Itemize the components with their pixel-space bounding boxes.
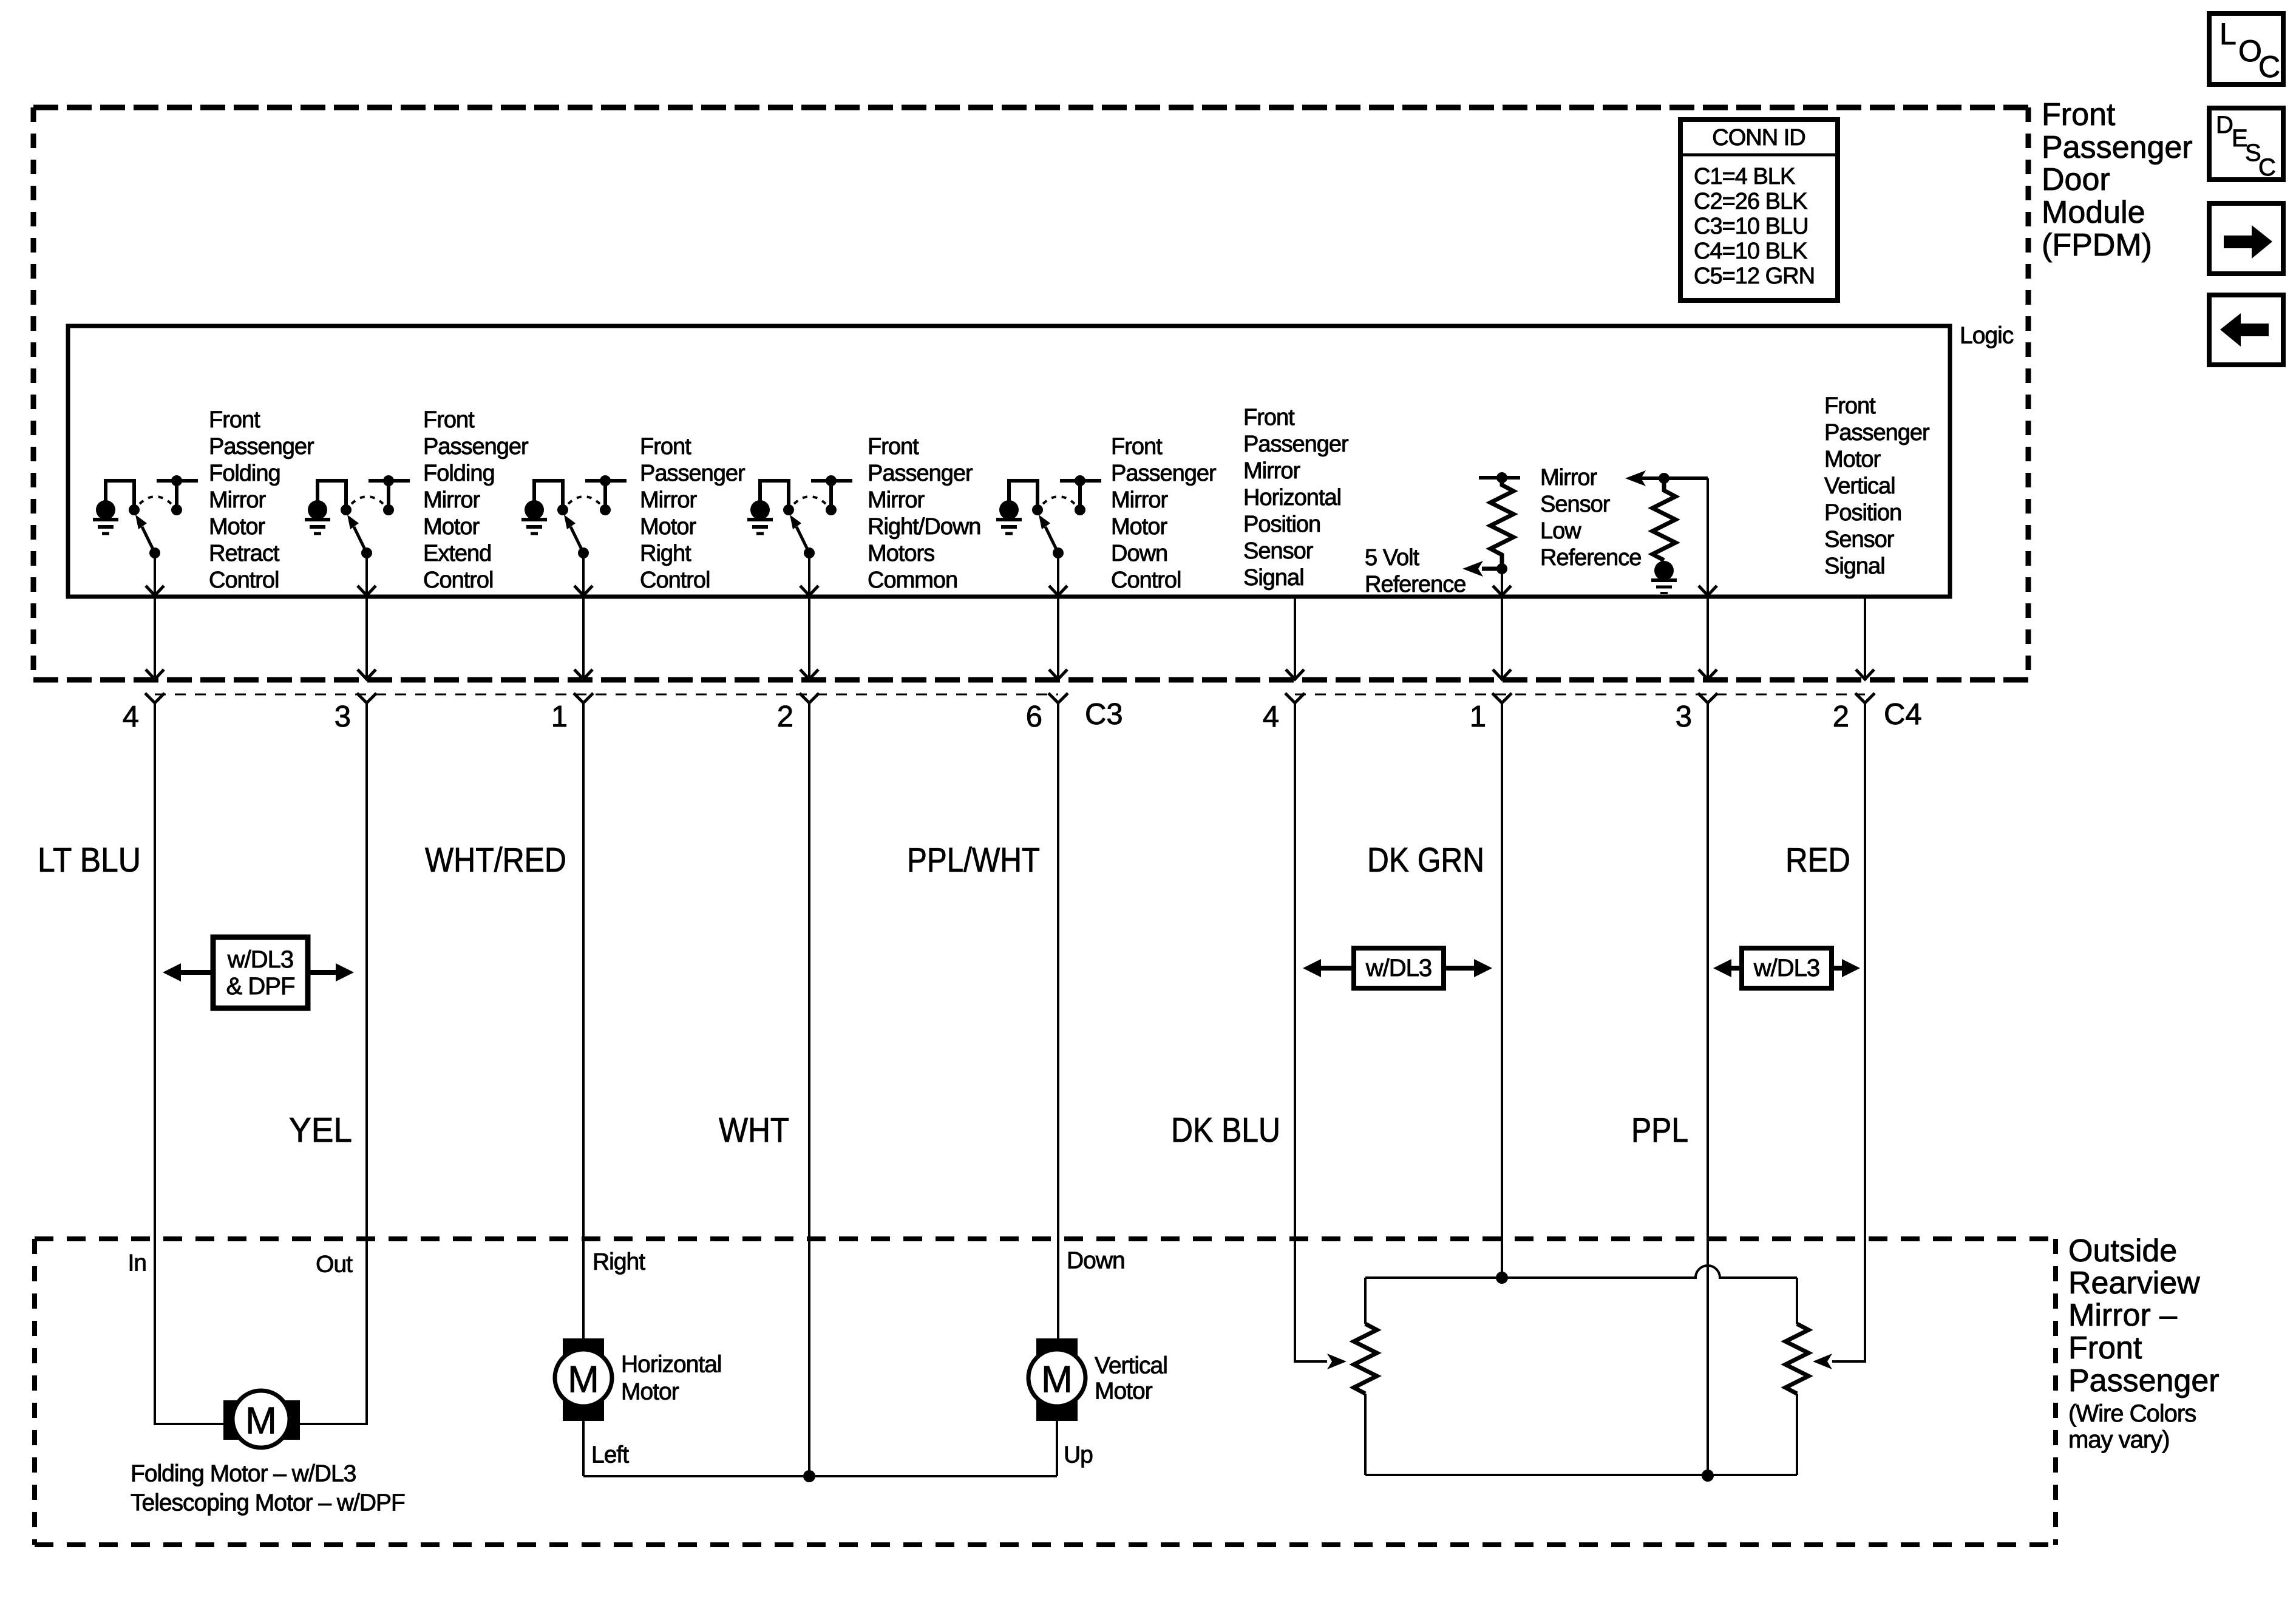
svg-text:Passenger: Passenger: [423, 434, 529, 459]
svg-text:D: D: [2216, 112, 2233, 138]
svg-text:Front: Front: [209, 407, 260, 433]
svg-text:Folding Motor – w/DL3: Folding Motor – w/DL3: [131, 1461, 356, 1487]
svg-text:1: 1: [1470, 700, 1486, 733]
svg-text:2: 2: [777, 700, 793, 733]
svg-text:& DPF: & DPF: [226, 973, 295, 1000]
svg-text:LT BLU: LT BLU: [38, 841, 141, 880]
svg-text:C: C: [2258, 50, 2280, 84]
svg-text:may vary): may vary): [2068, 1426, 2170, 1453]
svg-text:Motors: Motors: [868, 541, 934, 566]
svg-text:Control: Control: [423, 568, 494, 593]
svg-text:1: 1: [551, 700, 568, 733]
svg-text:Right/Down: Right/Down: [868, 514, 980, 540]
svg-text:C5=12 GRN: C5=12 GRN: [1694, 263, 1815, 289]
svg-text:Mirror: Mirror: [1111, 487, 1169, 513]
svg-text:Passenger: Passenger: [868, 461, 973, 486]
svg-text:L: L: [2220, 17, 2237, 51]
svg-text:6: 6: [1026, 700, 1042, 733]
svg-text:Control: Control: [209, 568, 279, 593]
svg-text:DK BLU: DK BLU: [1171, 1111, 1280, 1150]
svg-text:Telescoping Motor – w/DPF: Telescoping Motor – w/DPF: [131, 1490, 405, 1516]
svg-text:WHT/RED: WHT/RED: [425, 841, 566, 880]
svg-text:Front: Front: [640, 434, 691, 459]
svg-text:Motor: Motor: [640, 514, 696, 540]
svg-text:Module: Module: [2042, 195, 2145, 230]
svg-text:Folding: Folding: [423, 461, 495, 486]
svg-text:Vertical: Vertical: [1824, 473, 1895, 499]
svg-text:YEL: YEL: [289, 1111, 352, 1150]
svg-text:Motor: Motor: [423, 514, 480, 540]
svg-text:Rearview: Rearview: [2068, 1266, 2200, 1301]
svg-text:Horizontal: Horizontal: [1243, 485, 1341, 510]
svg-text:Sensor: Sensor: [1824, 527, 1895, 552]
svg-text:3: 3: [1676, 700, 1692, 733]
svg-text:Passenger: Passenger: [640, 461, 746, 486]
svg-text:Reference: Reference: [1365, 572, 1466, 597]
svg-text:Motor: Motor: [1111, 514, 1167, 540]
svg-text:Motor: Motor: [621, 1379, 679, 1405]
svg-text:M: M: [1041, 1359, 1073, 1401]
svg-text:w/DL3: w/DL3: [227, 946, 293, 973]
svg-text:Motor: Motor: [209, 514, 265, 540]
svg-text:4: 4: [123, 700, 139, 733]
svg-text:C2=26 BLK: C2=26 BLK: [1694, 189, 1807, 214]
svg-text:Motor: Motor: [1095, 1378, 1153, 1405]
svg-text:(FPDM): (FPDM): [2042, 228, 2152, 263]
svg-text:Retract: Retract: [209, 541, 280, 566]
svg-text:3: 3: [335, 700, 351, 733]
svg-text:Logic: Logic: [1960, 323, 2014, 349]
svg-text:Front: Front: [1824, 393, 1876, 419]
svg-text:Reference: Reference: [1540, 545, 1641, 571]
svg-text:w/DL3: w/DL3: [1753, 955, 1819, 981]
svg-text:Extend: Extend: [423, 541, 491, 566]
svg-text:M: M: [245, 1400, 277, 1442]
svg-text:Front: Front: [1111, 434, 1163, 459]
svg-text:Front: Front: [423, 407, 475, 433]
svg-text:Front: Front: [2068, 1331, 2142, 1366]
svg-text:Right: Right: [593, 1249, 645, 1275]
svg-text:C4=10 BLK: C4=10 BLK: [1694, 239, 1807, 264]
svg-text:Down: Down: [1111, 541, 1167, 566]
svg-text:Control: Control: [640, 568, 710, 593]
svg-text:4: 4: [1263, 700, 1279, 733]
svg-text:Outside: Outside: [2068, 1233, 2177, 1269]
svg-text:In: In: [127, 1250, 146, 1276]
svg-text:Passenger: Passenger: [1824, 420, 1930, 446]
svg-text:C3: C3: [1085, 698, 1123, 731]
svg-text:C3=10 BLU: C3=10 BLU: [1694, 214, 1809, 239]
svg-text:Door: Door: [2042, 162, 2110, 197]
svg-text:WHT: WHT: [719, 1111, 789, 1150]
svg-text:Folding: Folding: [209, 461, 280, 486]
svg-text:Passenger: Passenger: [2068, 1363, 2220, 1398]
svg-text:(Wire Colors: (Wire Colors: [2068, 1400, 2196, 1427]
svg-text:Down: Down: [1067, 1248, 1125, 1274]
svg-text:Position: Position: [1243, 512, 1320, 537]
svg-text:Passenger: Passenger: [1243, 432, 1349, 457]
svg-text:PPL/WHT: PPL/WHT: [907, 841, 1040, 880]
svg-text:Mirror: Mirror: [423, 487, 481, 513]
svg-text:RED: RED: [1785, 841, 1850, 880]
svg-text:DK GRN: DK GRN: [1367, 841, 1484, 880]
svg-text:Mirror: Mirror: [640, 487, 698, 513]
svg-text:Horizontal: Horizontal: [621, 1352, 722, 1378]
svg-text:Mirror: Mirror: [209, 487, 267, 513]
svg-text:C: C: [2258, 154, 2276, 181]
svg-text:Sensor: Sensor: [1243, 538, 1314, 564]
svg-text:Signal: Signal: [1824, 554, 1885, 579]
svg-text:Mirror –: Mirror –: [2068, 1298, 2177, 1333]
svg-text:Left: Left: [591, 1442, 629, 1468]
svg-text:Control: Control: [1111, 568, 1181, 593]
svg-text:C1=4 BLK: C1=4 BLK: [1694, 164, 1795, 189]
svg-text:M: M: [568, 1359, 599, 1401]
svg-text:Passenger: Passenger: [2042, 130, 2193, 165]
svg-text:PPL: PPL: [1631, 1111, 1688, 1150]
svg-text:5 Volt: 5 Volt: [1365, 545, 1420, 571]
svg-text:Position: Position: [1824, 500, 1901, 526]
svg-text:Front: Front: [868, 434, 919, 459]
svg-text:Mirror: Mirror: [868, 487, 925, 513]
svg-text:Mirror: Mirror: [1540, 465, 1598, 490]
svg-text:Up: Up: [1064, 1442, 1093, 1468]
svg-text:Motor: Motor: [1824, 447, 1881, 472]
svg-text:w/DL3: w/DL3: [1365, 955, 1432, 981]
svg-text:Sensor: Sensor: [1540, 492, 1611, 517]
svg-text:2: 2: [1833, 700, 1849, 733]
svg-text:CONN ID: CONN ID: [1712, 125, 1805, 151]
svg-text:Right: Right: [640, 541, 691, 566]
svg-text:Signal: Signal: [1243, 565, 1304, 591]
svg-text:Vertical: Vertical: [1095, 1353, 1167, 1379]
svg-text:Common: Common: [868, 568, 957, 593]
svg-text:Low: Low: [1540, 518, 1581, 544]
svg-text:Front: Front: [1243, 405, 1295, 430]
svg-text:Front: Front: [2042, 97, 2116, 132]
svg-text:Out: Out: [316, 1252, 353, 1278]
svg-text:Passenger: Passenger: [1111, 461, 1217, 486]
svg-text:C4: C4: [1884, 698, 1922, 731]
svg-text:Mirror: Mirror: [1243, 458, 1301, 484]
svg-text:Passenger: Passenger: [209, 434, 314, 459]
